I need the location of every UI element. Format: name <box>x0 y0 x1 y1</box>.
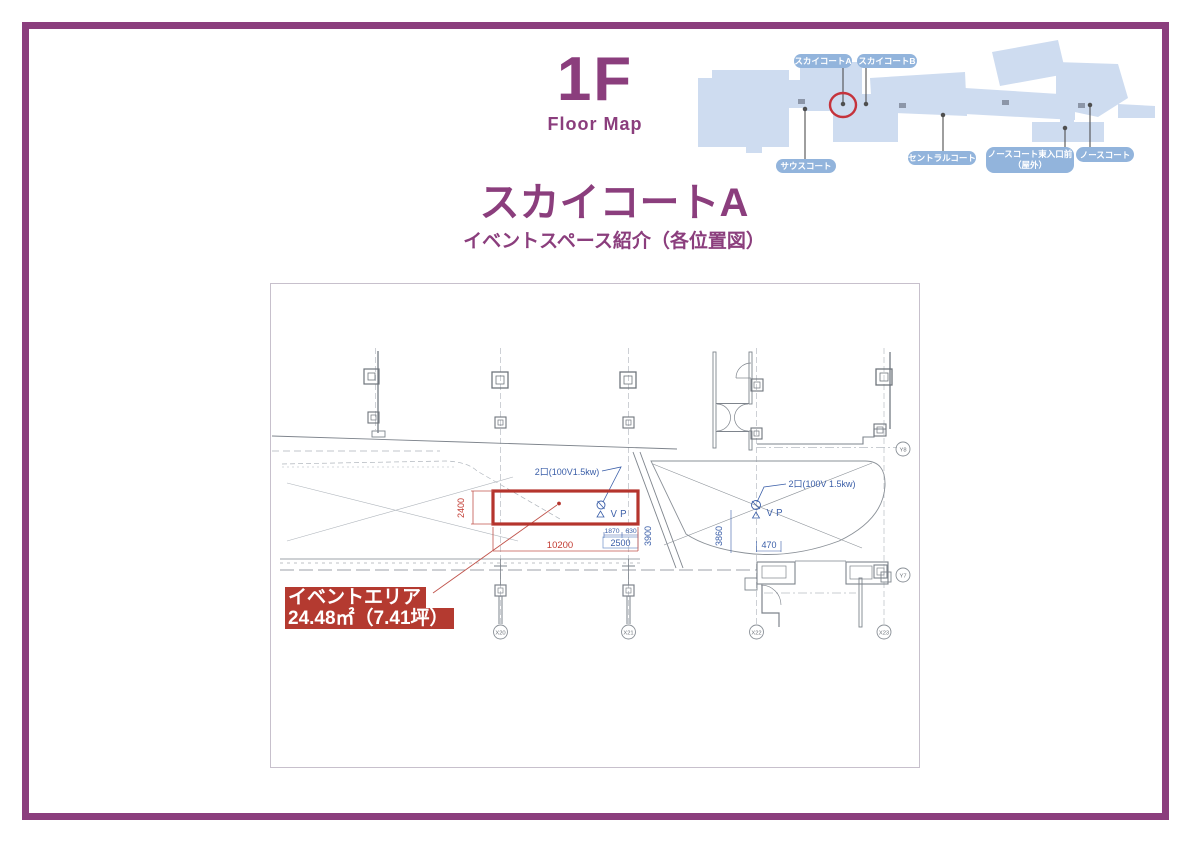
floor-header: 1F Floor Map <box>470 48 720 135</box>
grid-bubble-y7: Y7 <box>899 574 906 580</box>
dim-3900: 3900 <box>643 526 653 546</box>
dim-3860: 3860 <box>714 526 724 546</box>
map-label-text: スカイコートB <box>858 56 915 66</box>
map-label-text: （屋外） <box>1013 160 1047 170</box>
mall-footprint <box>698 40 1155 153</box>
vp-label-right: ＶＰ <box>765 508 784 519</box>
outlet-label-right: 2口(100V 1.5kw) <box>788 479 855 489</box>
overview-minimap: スカイコートA スカイコートB サウスコート セントラルコート ノースコート東入… <box>695 32 1155 180</box>
section-subtitle: イベントスペース紹介（各位置図） <box>414 226 814 253</box>
grid-bubble-y8: Y8 <box>899 448 906 454</box>
map-label-sky-court-b: スカイコートB <box>857 54 917 68</box>
dim-2500: 2500 <box>610 538 630 548</box>
map-label-north-court: ノースコート <box>1076 147 1134 162</box>
map-label-text: ノースコート東入口前 <box>988 149 1073 159</box>
columns <box>364 369 892 439</box>
dim-1870: 1870 <box>604 528 619 535</box>
grid-bubble-x22: X22 <box>751 631 761 637</box>
dim-2400: 2400 <box>456 498 466 518</box>
section-title: スカイコートA <box>414 181 814 225</box>
grid-bubble-x23: X23 <box>879 631 889 637</box>
map-label-text: ノースコート <box>1080 150 1131 160</box>
floor-plan-drawing: 2口(100V1.5kw) ＶＰ 2口(100V 1.5kw) ＶＰ 1870 … <box>270 283 920 768</box>
floor-plan-svg: 2口(100V1.5kw) ＶＰ 2口(100V 1.5kw) ＶＰ 1870 … <box>270 283 920 768</box>
map-label-sky-court-a: スカイコートA <box>794 54 852 68</box>
dim-470: 470 <box>761 540 776 550</box>
map-label-central-court: セントラルコート <box>908 151 976 165</box>
vp-label-left: ＶＰ <box>609 509 628 520</box>
map-label-south-court: サウスコート <box>776 159 836 173</box>
grid-bubble-x21: X21 <box>623 631 633 637</box>
overview-minimap-svg: スカイコートA スカイコートB サウスコート セントラルコート ノースコート東入… <box>695 32 1155 180</box>
floor-map-page: { "header": { "floor_number": "1F", "flo… <box>0 0 1191 842</box>
section-header: スカイコートA イベントスペース紹介（各位置図） <box>414 181 814 253</box>
blue-dimensions: 1870 630 2500 3900 3860 470 <box>603 510 781 553</box>
floor-number: 1F <box>470 48 720 112</box>
map-label-text: スカイコートA <box>794 56 851 66</box>
dim-630: 630 <box>625 528 637 535</box>
event-area-label-line2: 24.48㎡（7.41坪） <box>285 608 454 629</box>
outlet-label-left: 2口(100V1.5kw) <box>535 467 600 477</box>
floor-caption: Floor Map <box>470 114 720 135</box>
left-area-guides <box>272 451 560 541</box>
map-label-text: サウスコート <box>780 161 831 171</box>
map-label-north-court-east: ノースコート東入口前 （屋外） <box>986 147 1074 173</box>
event-area-label: イベントエリア 24.48㎡（7.41坪） <box>285 587 454 629</box>
electrical-annotations: 2口(100V1.5kw) ＶＰ 2口(100V 1.5kw) ＶＰ <box>535 467 856 520</box>
event-area-label-line1: イベントエリア <box>285 587 426 608</box>
map-label-text: セントラルコート <box>908 153 976 163</box>
dim-10200: 10200 <box>547 540 573 551</box>
grid-bubble-x20: X20 <box>495 631 505 637</box>
event-area-highlight: 2400 10200 <box>433 491 638 593</box>
